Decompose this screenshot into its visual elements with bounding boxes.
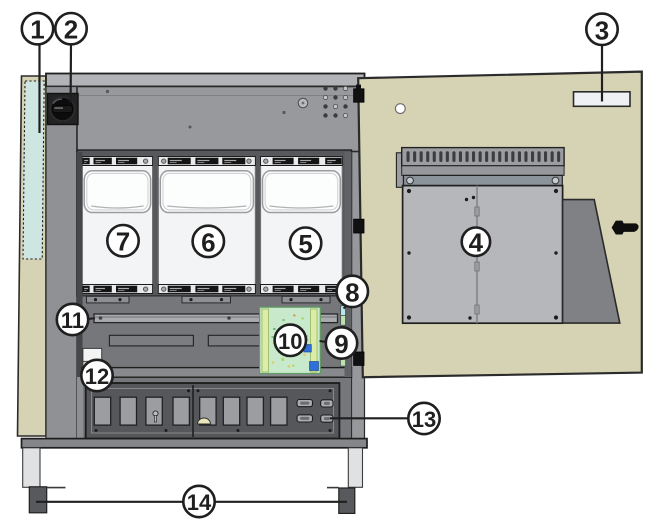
svg-text:10: 10 <box>278 329 302 354</box>
svg-text:14: 14 <box>187 490 212 515</box>
svg-text:9: 9 <box>334 329 348 359</box>
svg-text:13: 13 <box>412 407 436 432</box>
svg-text:1: 1 <box>30 15 44 45</box>
svg-text:4: 4 <box>469 228 484 258</box>
svg-text:12: 12 <box>85 364 109 389</box>
svg-text:11: 11 <box>61 308 84 333</box>
svg-text:8: 8 <box>345 277 359 307</box>
svg-text:2: 2 <box>64 15 78 45</box>
svg-text:6: 6 <box>201 227 215 257</box>
svg-text:7: 7 <box>116 227 130 257</box>
svg-text:5: 5 <box>298 229 312 259</box>
svg-text:3: 3 <box>595 15 609 45</box>
